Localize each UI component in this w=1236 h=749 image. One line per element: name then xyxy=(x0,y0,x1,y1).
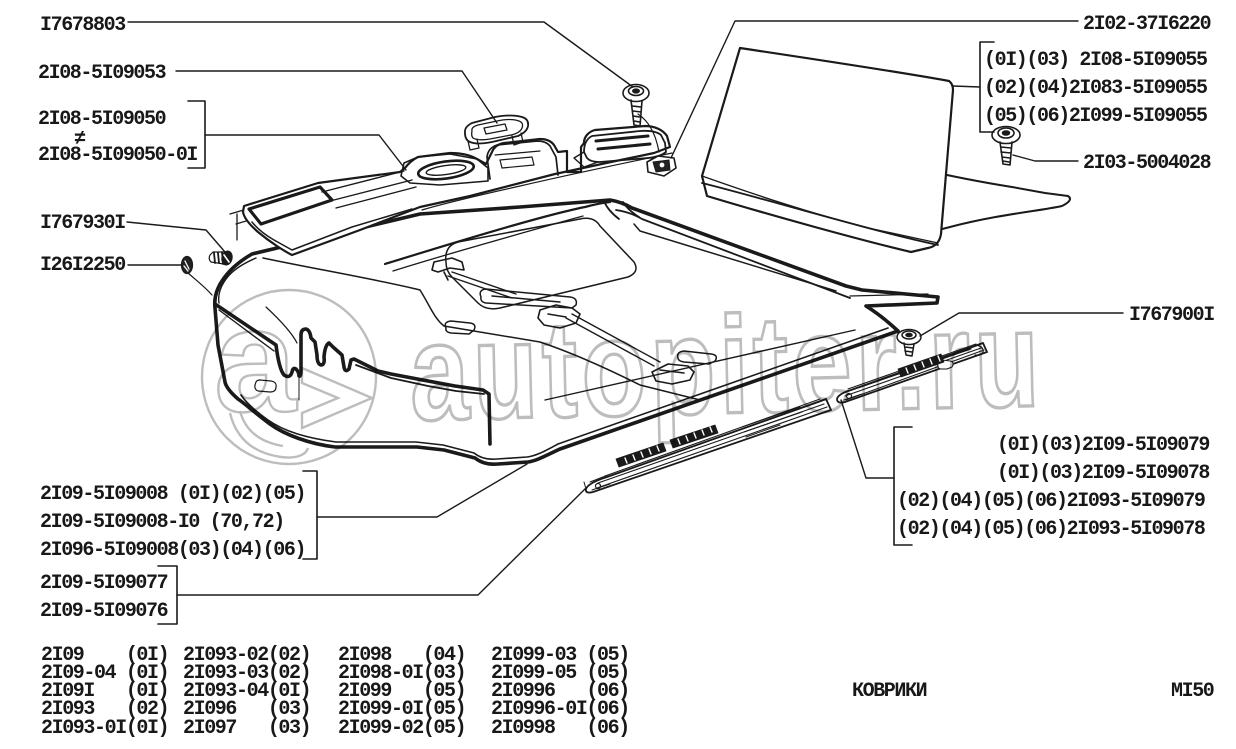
svg-text:2I08-5I09050-0I: 2I08-5I09050-0I xyxy=(38,144,197,167)
svg-text:(02)(04)2I083-5I09055: (02)(04)2I083-5I09055 xyxy=(984,77,1207,100)
svg-text:(05)(06)2I099-5I09055: (05)(06)2I099-5I09055 xyxy=(984,105,1207,128)
svg-text:2I09-5I09008-I0 (70,72): 2I09-5I09008-I0 (70,72) xyxy=(40,511,284,534)
svg-text:I767930I: I767930I xyxy=(40,212,125,235)
svg-text:(0I)(03)2I09-5I09078: (0I)(03)2I09-5I09078 xyxy=(997,462,1209,485)
svg-text:I7678803: I7678803 xyxy=(40,14,125,37)
svg-text:(02)(04)(05)(06)2I093-5I09078: (02)(04)(05)(06)2I093-5I09078 xyxy=(897,518,1205,541)
svg-text:2I096-5I09008(03)(04)(06): 2I096-5I09008(03)(04)(06) xyxy=(40,539,305,562)
svg-text:2I09-5I09076: 2I09-5I09076 xyxy=(40,600,168,623)
svg-text:2I099-02(05): 2I099-02(05) xyxy=(338,717,465,740)
svg-text:I26I2250: I26I2250 xyxy=(40,254,125,277)
svg-text:2I03-5004028: 2I03-5004028 xyxy=(1083,152,1211,175)
svg-text:(0I)(03) 2I08-5I09055: (0I)(03) 2I08-5I09055 xyxy=(984,49,1207,72)
svg-text:2I097 (03): 2I097 (03) xyxy=(183,717,310,740)
svg-text:2I02-37I6220: 2I02-37I6220 xyxy=(1083,13,1211,36)
svg-text:a: a xyxy=(214,278,298,443)
svg-text:(0I)(03)2I09-5I09079: (0I)(03)2I09-5I09079 xyxy=(997,434,1209,457)
svg-text:2I093-0I(0I): 2I093-0I(0I) xyxy=(41,717,168,740)
svg-text:2I08-5I09053: 2I08-5I09053 xyxy=(38,62,166,85)
svg-text:КОВРИКИ: КОВРИКИ xyxy=(852,680,927,703)
svg-text:МI50: МI50 xyxy=(1171,680,1214,703)
svg-text:2I08-5I09050: 2I08-5I09050 xyxy=(38,108,166,131)
svg-text:autopiter.ru: autopiter.ru xyxy=(408,282,1045,450)
svg-text:2I0998 (06): 2I0998 (06) xyxy=(491,717,629,740)
svg-text:2I09-5I09008 (0I)(02)(05): 2I09-5I09008 (0I)(02)(05) xyxy=(40,483,305,506)
svg-text:2I09-5I09077: 2I09-5I09077 xyxy=(40,572,168,595)
svg-text:(02)(04)(05)(06)2I093-5I09079: (02)(04)(05)(06)2I093-5I09079 xyxy=(897,490,1205,513)
svg-text:I767900I: I767900I xyxy=(1129,304,1214,327)
